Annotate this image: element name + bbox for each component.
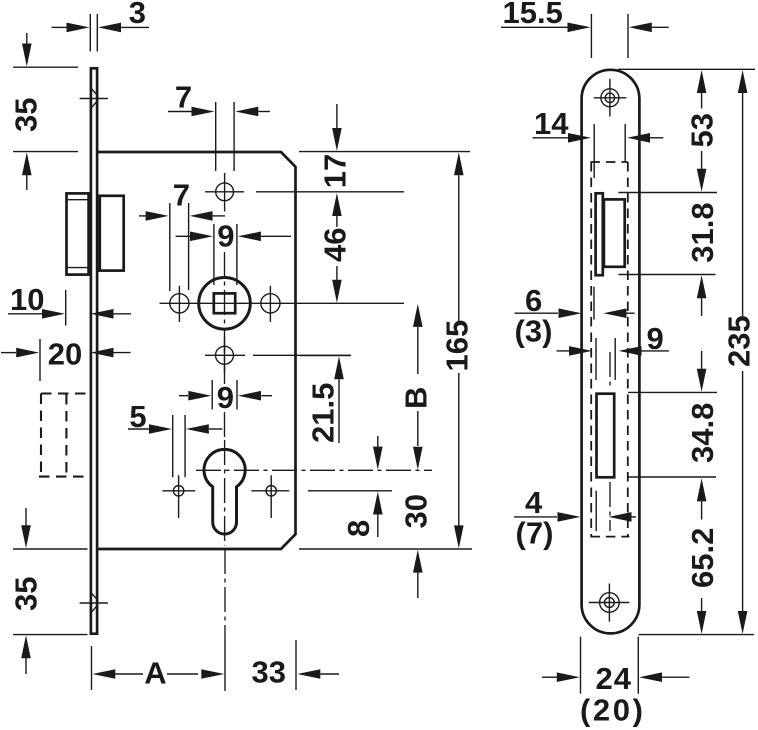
svg-text:165: 165 [439,320,474,372]
svg-text:24: 24 [596,661,632,696]
svg-text:(7): (7) [516,516,554,551]
svg-text:B: B [398,387,433,409]
svg-text:31.8: 31.8 [685,202,720,262]
svg-text:65.2: 65.2 [685,528,720,588]
svg-text:8: 8 [341,520,376,537]
svg-text:5: 5 [129,399,146,434]
svg-text:3: 3 [129,0,146,30]
svg-text:20: 20 [48,337,82,372]
svg-text:9: 9 [217,218,234,253]
svg-text:46: 46 [318,228,353,262]
svg-text:235: 235 [722,315,757,367]
svg-text:53: 53 [685,113,720,147]
svg-text:15.5: 15.5 [503,0,563,30]
svg-text:(3): (3) [515,314,553,349]
svg-text:(20): (20) [580,693,646,728]
svg-text:17: 17 [318,154,353,188]
svg-text:9: 9 [217,380,234,415]
svg-text:21.5: 21.5 [306,383,341,443]
svg-text:10: 10 [10,282,44,317]
svg-text:7: 7 [173,178,190,213]
svg-text:34.8: 34.8 [685,403,720,463]
svg-text:35: 35 [9,577,44,611]
svg-text:7: 7 [175,79,192,114]
svg-text:14: 14 [534,106,569,141]
svg-text:30: 30 [398,494,433,528]
svg-text:33: 33 [252,655,286,690]
svg-text:35: 35 [9,98,44,132]
svg-text:A: A [144,655,166,690]
